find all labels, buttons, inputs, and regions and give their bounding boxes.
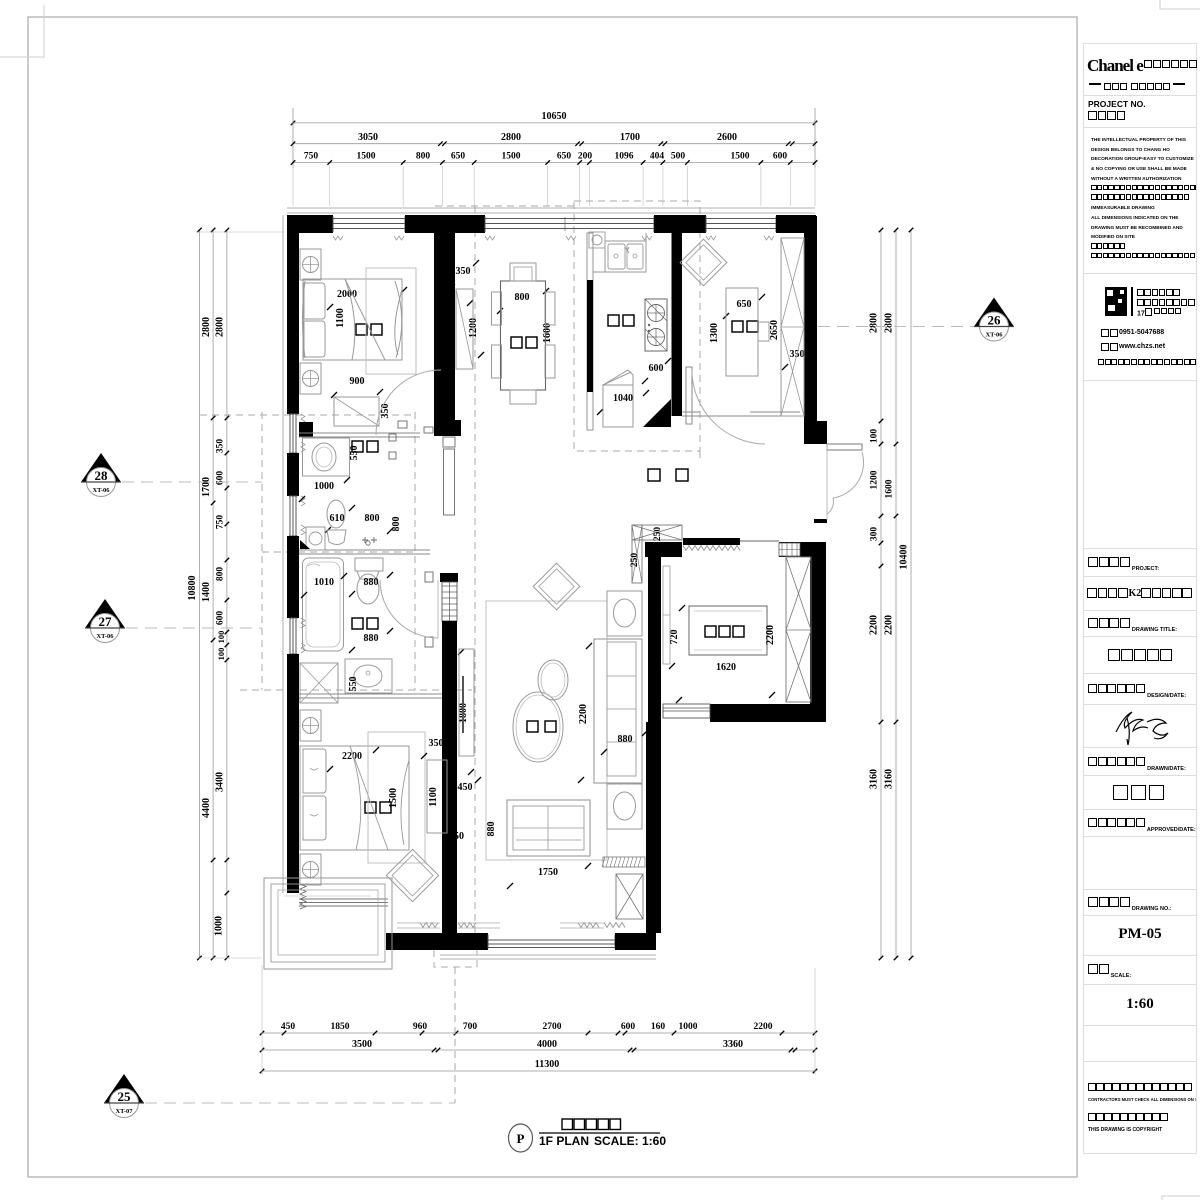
svg-text:1096: 1096 [615,152,634,162]
svg-text:2650: 2650 [769,320,780,340]
svg-text:250: 250 [630,553,640,568]
svg-text:800: 800 [216,567,226,582]
svg-text:2200: 2200 [578,704,589,724]
svg-text:1700: 1700 [201,477,212,497]
svg-text:4400: 4400 [201,798,212,818]
svg-text:800: 800 [416,152,431,162]
svg-text:350: 350 [456,266,471,277]
svg-text:1620: 1620 [716,662,736,673]
svg-text:10800: 10800 [187,576,198,601]
svg-text:600: 600 [649,363,664,374]
svg-text:500: 500 [671,152,686,162]
svg-text:3360: 3360 [723,1039,743,1050]
svg-text:650: 650 [737,299,752,310]
svg-text:50: 50 [454,831,464,842]
svg-text:550: 550 [349,446,360,461]
svg-text:700: 700 [463,1022,478,1032]
svg-text:720: 720 [669,630,680,645]
svg-text:250: 250 [653,527,663,542]
svg-text:28: 28 [95,468,109,483]
svg-text:10400: 10400 [899,545,910,570]
svg-text:450: 450 [281,1022,296,1032]
svg-text:800: 800 [365,513,380,524]
svg-text:300: 300 [870,527,880,542]
svg-text:2800: 2800 [215,317,226,337]
svg-text:11300: 11300 [535,1059,559,1070]
svg-text:600: 600 [773,152,788,162]
svg-text:1040: 1040 [613,393,633,404]
svg-text:3400: 3400 [215,772,226,792]
svg-text:2800: 2800 [884,313,895,333]
svg-text:2200: 2200 [869,615,880,635]
svg-text:1200: 1200 [870,470,880,489]
svg-text:880: 880 [364,633,379,644]
svg-text:2800: 2800 [869,313,880,333]
svg-text:1700: 1700 [620,132,640,143]
svg-text:880: 880 [486,822,497,837]
svg-text:600: 600 [216,611,226,626]
svg-text:450: 450 [458,782,473,793]
svg-text:1F PLAN: 1F PLAN [539,1134,589,1148]
svg-text:2200: 2200 [765,625,776,645]
svg-text:650: 650 [451,152,466,162]
svg-text:P: P [517,1131,525,1146]
svg-text:600: 600 [621,1022,636,1032]
svg-text:3050: 3050 [358,132,378,143]
svg-text:1400: 1400 [201,582,212,602]
svg-text:2700: 2700 [543,1022,562,1032]
svg-text:200: 200 [578,152,593,162]
svg-text:550: 550 [348,677,359,692]
svg-text:100: 100 [870,429,880,444]
svg-text:XT-06: XT-06 [96,633,114,640]
svg-text:800: 800 [515,292,530,303]
svg-text:1000: 1000 [214,916,225,936]
svg-text:SCALE: 1:60: SCALE: 1:60 [594,1134,666,1148]
svg-text:350: 350 [429,738,444,749]
svg-text:404: 404 [650,152,665,162]
svg-text:2600: 2600 [717,132,737,143]
svg-text:350: 350 [216,439,226,454]
svg-text:1600: 1600 [542,323,553,343]
svg-text:2200: 2200 [754,1022,773,1032]
svg-text:2800: 2800 [201,317,212,337]
svg-text:1500: 1500 [731,152,750,162]
svg-text:10650: 10650 [542,111,567,122]
svg-text:4000: 4000 [537,1039,557,1050]
svg-text:XT-06: XT-06 [92,487,110,494]
svg-text:3160: 3160 [869,769,880,789]
svg-text:900: 900 [350,376,365,387]
svg-text:1300: 1300 [709,323,720,343]
svg-text:1500: 1500 [388,788,399,808]
svg-text:610: 610 [330,513,345,524]
svg-text:1500: 1500 [357,152,376,162]
svg-text:750: 750 [304,152,319,162]
svg-text:1010: 1010 [314,577,334,588]
svg-text:1100: 1100 [428,787,439,806]
svg-text:XT-07: XT-07 [115,1108,133,1115]
svg-text:350: 350 [380,404,391,419]
svg-text:1100: 1100 [335,308,346,327]
svg-text:2200: 2200 [884,615,895,635]
svg-text:1600: 1600 [885,479,895,498]
svg-text:25: 25 [118,1089,132,1104]
svg-text:160: 160 [651,1022,666,1032]
svg-text:3500: 3500 [352,1039,372,1050]
svg-text:27: 27 [99,614,113,629]
svg-text:960: 960 [413,1022,428,1032]
svg-text:650: 650 [557,152,572,162]
svg-text:1000: 1000 [314,481,334,492]
svg-text:XT-06: XT-06 [985,332,1003,339]
svg-text:100: 100 [216,648,226,661]
svg-text:1000: 1000 [679,1022,698,1032]
svg-text:880: 880 [618,734,633,745]
svg-text:750: 750 [216,515,226,530]
svg-text:2800: 2800 [501,132,521,143]
svg-text:600: 600 [216,471,226,486]
svg-text:880: 880 [364,577,379,588]
svg-text:1500: 1500 [502,152,521,162]
svg-text:26: 26 [988,313,1002,328]
svg-text:1750: 1750 [538,867,558,878]
svg-text:1850: 1850 [331,1022,350,1032]
svg-text:100: 100 [216,631,226,644]
svg-text:3160: 3160 [884,769,895,789]
